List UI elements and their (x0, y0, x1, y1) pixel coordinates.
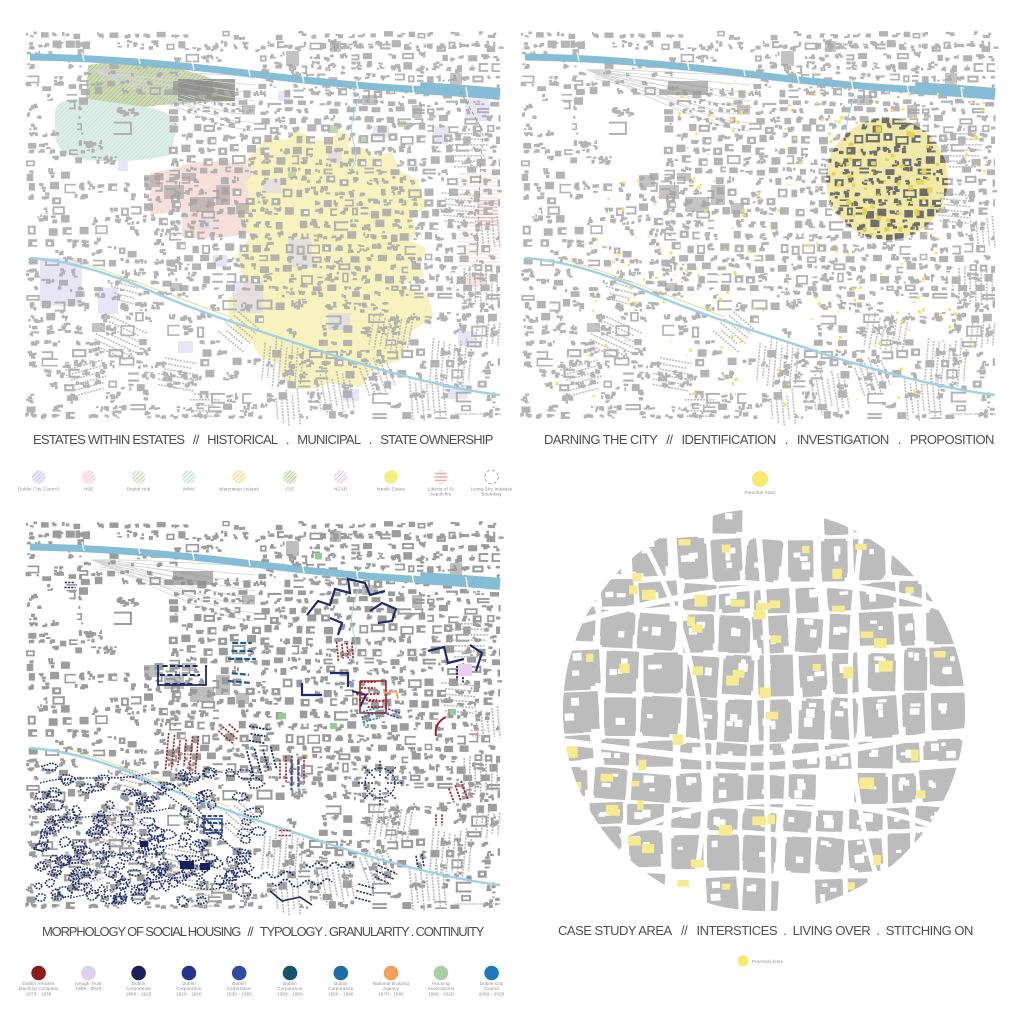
svg-text:basemap drawn using OSM data: basemap drawn using OSM data (455, 902, 502, 906)
svg-text:basemap drawn using OSM data: basemap drawn using OSM data (455, 412, 502, 416)
svg-text:basemap drawn using OSM data: basemap drawn using OSM data (950, 412, 997, 416)
